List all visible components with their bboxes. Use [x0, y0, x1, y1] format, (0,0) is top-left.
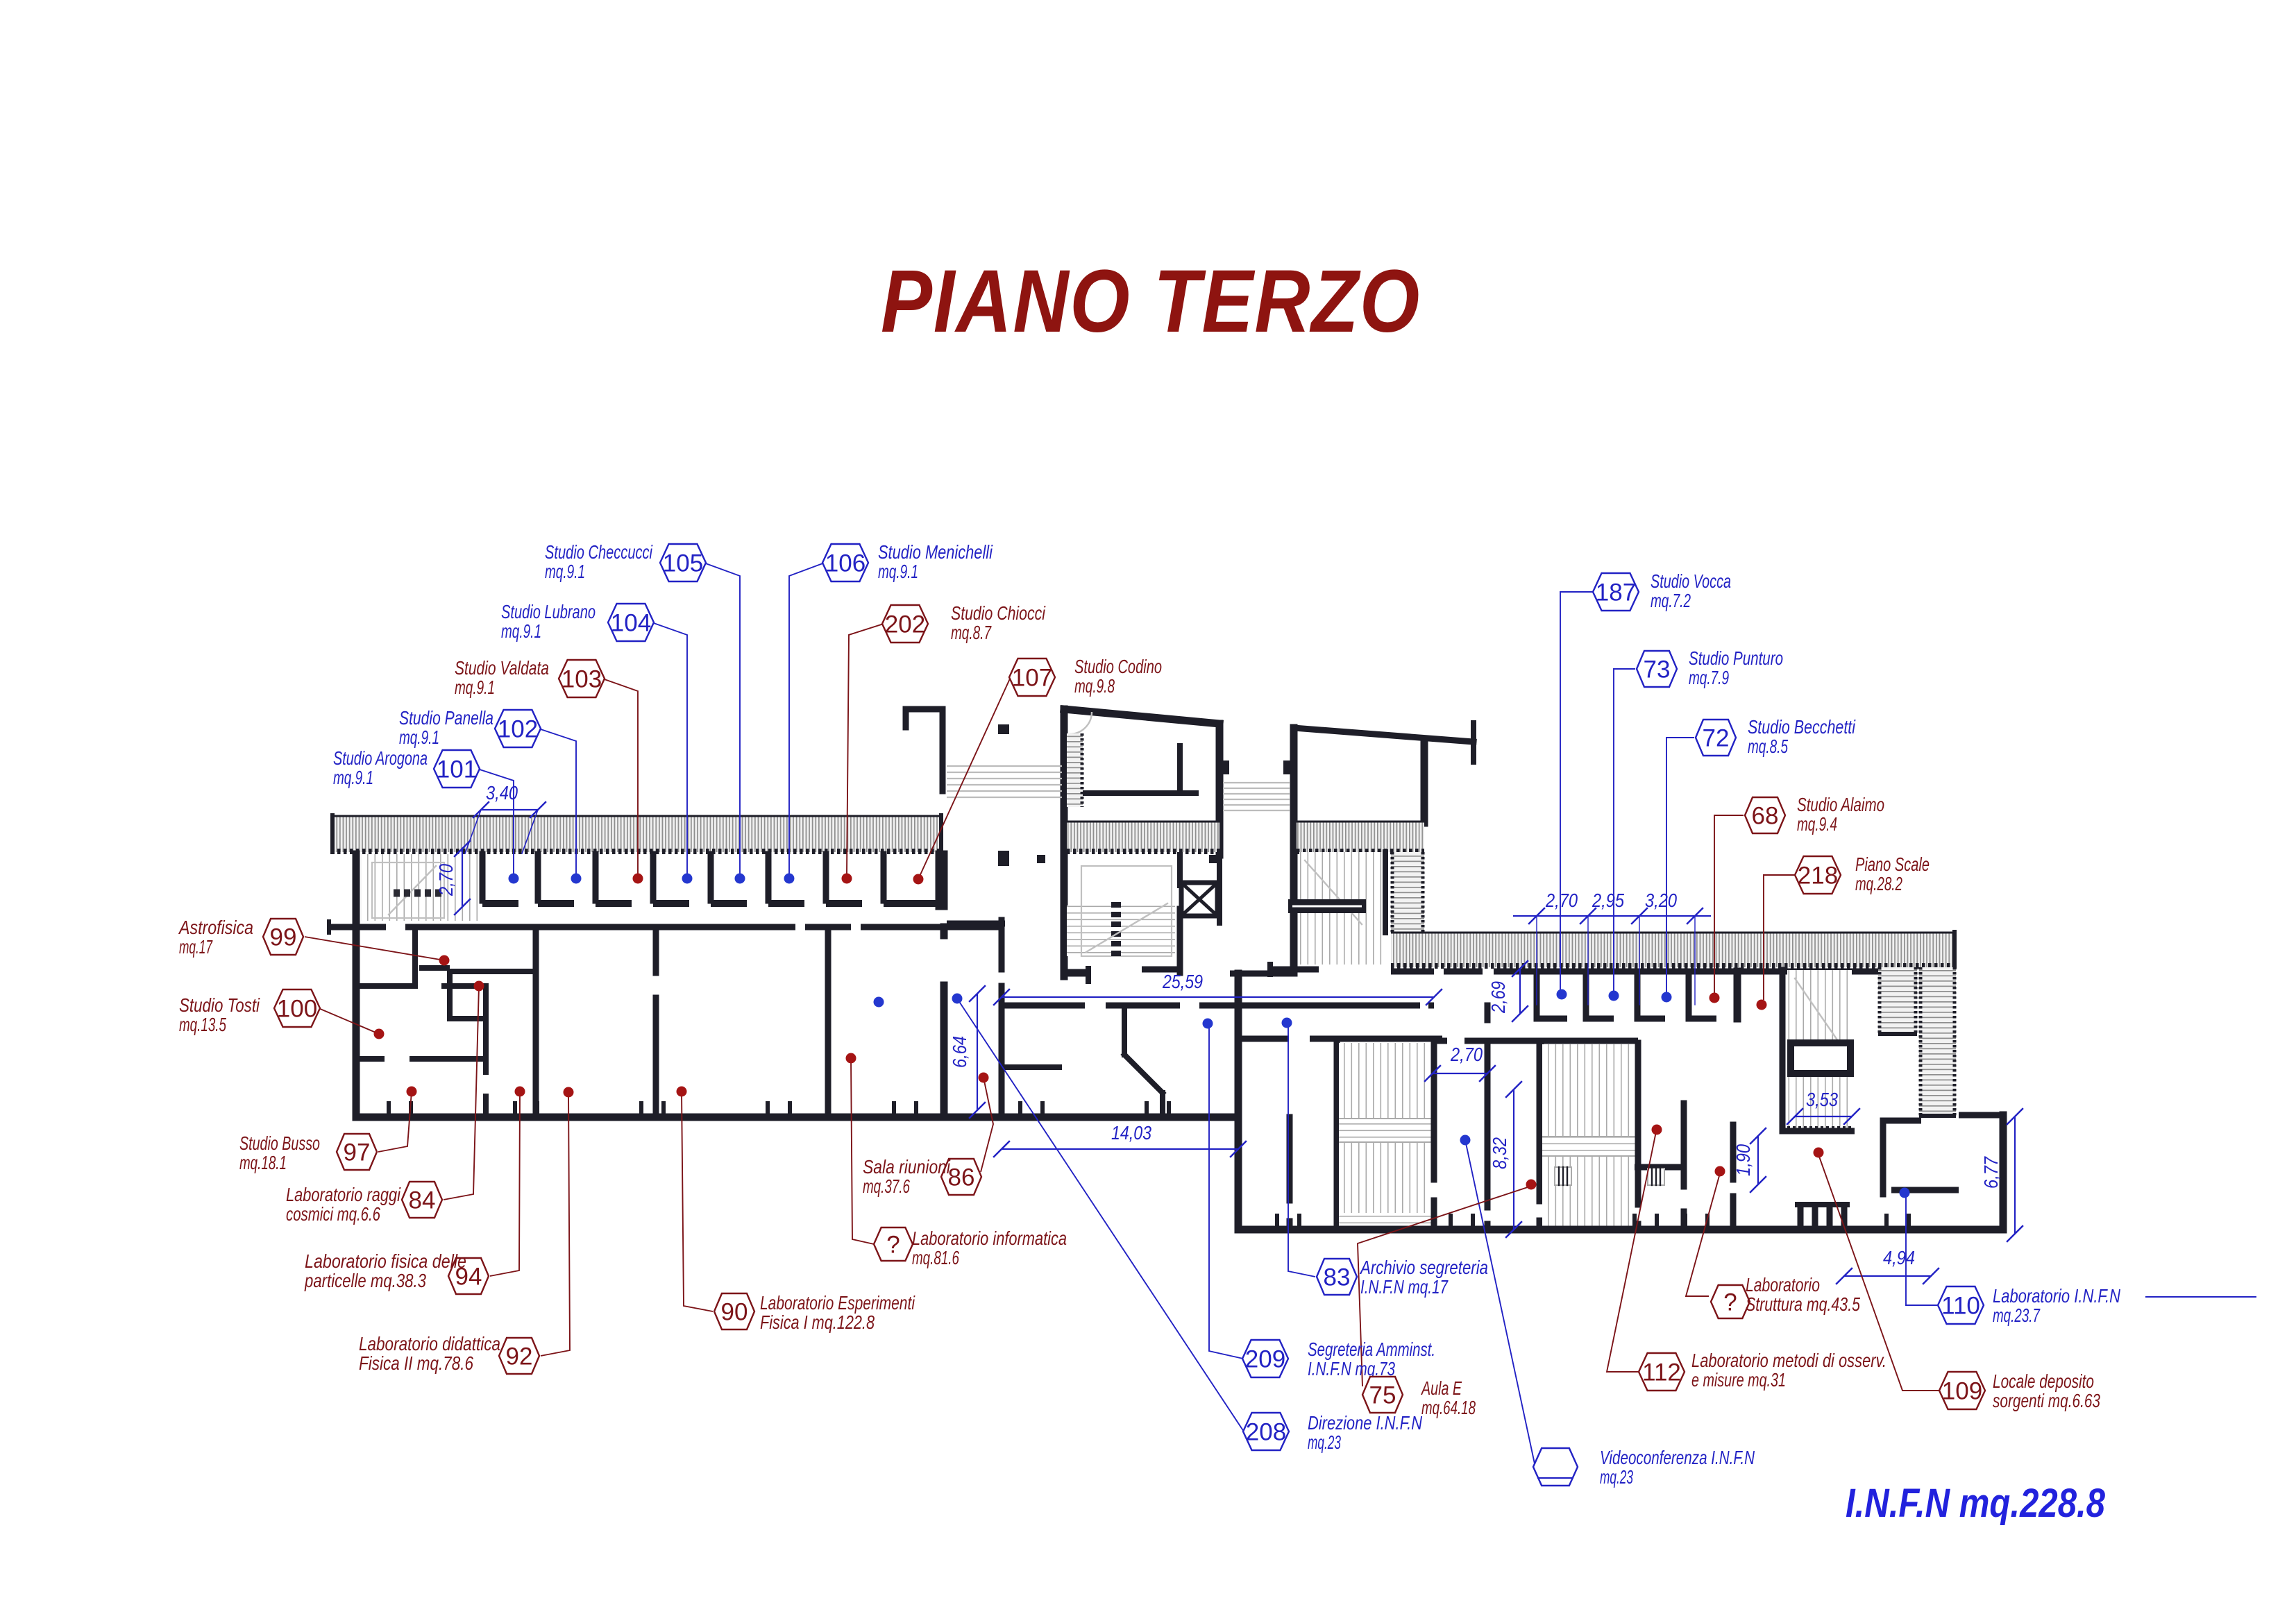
svg-text:Studio Panella: Studio Panella [399, 707, 493, 729]
svg-text:Studio Becchetti: Studio Becchetti [1748, 716, 1856, 738]
svg-text:6,64: 6,64 [949, 1036, 970, 1068]
svg-text:sorgenti mq.6.63: sorgenti mq.6.63 [1993, 1390, 2101, 1411]
svg-text:107: 107 [1012, 664, 1052, 691]
svg-text:Laboratorio I.N.F.N: Laboratorio I.N.F.N [1993, 1285, 2120, 1307]
svg-text:2,70: 2,70 [435, 864, 457, 897]
svg-text:2,70: 2,70 [1450, 1044, 1483, 1065]
svg-text:PIANO TERZO: PIANO TERZO [881, 252, 1421, 351]
svg-text:109: 109 [1942, 1377, 1982, 1404]
svg-text:8,32: 8,32 [1489, 1137, 1510, 1169]
svg-text:mq.64.18: mq.64.18 [1421, 1397, 1476, 1418]
svg-text:Sala riunioni: Sala riunioni [863, 1156, 951, 1178]
svg-text:mq.9.4: mq.9.4 [1797, 813, 1837, 835]
svg-text:104: 104 [611, 609, 651, 636]
svg-text:Astrofisica: Astrofisica [178, 917, 253, 938]
svg-text:86: 86 [948, 1164, 975, 1191]
svg-text:Laboratorio metodi di osserv.: Laboratorio metodi di osserv. [1691, 1350, 1886, 1371]
svg-text:mq.9.1: mq.9.1 [455, 677, 495, 698]
svg-text:110: 110 [1941, 1292, 1980, 1319]
svg-text:mq.9.1: mq.9.1 [501, 620, 541, 642]
svg-text:Videoconferenza I.N.F.N: Videoconferenza I.N.F.N [1600, 1447, 1755, 1468]
svg-text:Studio Valdata: Studio Valdata [455, 657, 549, 679]
svg-text:mq.81.6: mq.81.6 [912, 1247, 959, 1268]
svg-text:Studio Vocca: Studio Vocca [1651, 570, 1731, 592]
svg-text:Studio Punturo: Studio Punturo [1689, 647, 1783, 669]
svg-text:14,03: 14,03 [1111, 1122, 1151, 1144]
svg-text:Laboratorio fisica delle: Laboratorio fisica delle [305, 1250, 466, 1272]
svg-text:209: 209 [1245, 1345, 1285, 1373]
svg-text:mq.8.5: mq.8.5 [1748, 736, 1788, 757]
svg-text:101: 101 [437, 756, 477, 783]
svg-text:Laboratorio raggi: Laboratorio raggi [286, 1184, 401, 1205]
svg-text:e misure mq.31: e misure mq.31 [1691, 1369, 1786, 1391]
svg-text:Studio Busso: Studio Busso [239, 1132, 320, 1154]
svg-text:Studio Codino: Studio Codino [1074, 656, 1162, 677]
svg-text:mq.17: mq.17 [179, 936, 213, 958]
svg-text:218: 218 [1798, 862, 1838, 889]
svg-text:72: 72 [1703, 724, 1730, 751]
svg-text:84: 84 [409, 1187, 436, 1214]
svg-text:?: ? [1723, 1289, 1737, 1316]
svg-text:90: 90 [721, 1298, 748, 1325]
svg-text:Studio Lubrano: Studio Lubrano [501, 601, 596, 622]
svg-text:25,59: 25,59 [1162, 971, 1203, 992]
svg-text:Studio Checcucci: Studio Checcucci [545, 541, 653, 563]
svg-text:99: 99 [270, 924, 297, 951]
svg-text:73: 73 [1644, 656, 1671, 683]
svg-text:68: 68 [1752, 802, 1779, 829]
svg-text:mq.18.1: mq.18.1 [239, 1152, 287, 1173]
svg-text:112: 112 [1642, 1359, 1681, 1386]
svg-text:mq.9.1: mq.9.1 [399, 726, 439, 748]
svg-text:4,94: 4,94 [1883, 1247, 1915, 1268]
svg-text:Studio Menichelli: Studio Menichelli [878, 541, 993, 563]
svg-text:Studio Tosti: Studio Tosti [179, 994, 260, 1016]
svg-text:102: 102 [498, 715, 538, 742]
svg-text:mq.37.6: mq.37.6 [863, 1175, 910, 1197]
svg-text:3,20: 3,20 [1645, 890, 1677, 911]
svg-text:mq.28.2: mq.28.2 [1855, 873, 1902, 894]
svg-text:Struttura mq.43.5: Struttura mq.43.5 [1746, 1293, 1861, 1315]
svg-text:mq.23: mq.23 [1308, 1431, 1341, 1453]
svg-text:Studio Arogona: Studio Arogona [333, 747, 428, 769]
svg-text:100: 100 [277, 995, 317, 1022]
svg-text:mq.8.7: mq.8.7 [951, 622, 992, 643]
svg-text:1,90: 1,90 [1732, 1144, 1754, 1176]
svg-text:mq.7.9: mq.7.9 [1689, 667, 1729, 688]
svg-text:mq.23.7: mq.23.7 [1993, 1305, 2041, 1326]
svg-text:Fisica II mq.78.6: Fisica II mq.78.6 [359, 1352, 474, 1374]
svg-text:Laboratorio didattica: Laboratorio didattica [359, 1333, 500, 1354]
svg-text:particelle mq.38.3: particelle mq.38.3 [304, 1270, 426, 1291]
svg-text:cosmici mq.6.6: cosmici mq.6.6 [286, 1203, 381, 1225]
svg-text:Locale deposito: Locale deposito [1993, 1370, 2094, 1392]
svg-text:202: 202 [885, 611, 925, 638]
svg-text:2,70: 2,70 [1545, 890, 1578, 911]
svg-text:mq.9.1: mq.9.1 [333, 767, 373, 788]
svg-text:208: 208 [1246, 1418, 1286, 1445]
svg-text:Studio Chiocci: Studio Chiocci [951, 602, 1046, 624]
svg-text:Laboratorio: Laboratorio [1746, 1274, 1820, 1295]
svg-text:105: 105 [663, 550, 703, 577]
svg-text:103: 103 [562, 665, 602, 692]
svg-text:mq.9.1: mq.9.1 [878, 561, 918, 582]
svg-text:6,77: 6,77 [1980, 1156, 2002, 1189]
svg-text:mq.7.2: mq.7.2 [1651, 590, 1691, 611]
svg-text:mq.9.1: mq.9.1 [545, 561, 585, 582]
svg-text:mq.9.8: mq.9.8 [1074, 675, 1115, 697]
svg-text:3,53: 3,53 [1806, 1089, 1838, 1110]
svg-text:Piano Scale: Piano Scale [1855, 853, 1930, 875]
svg-text:97: 97 [344, 1139, 371, 1166]
svg-text:106: 106 [825, 550, 866, 577]
svg-text:Laboratorio informatica: Laboratorio informatica [912, 1227, 1067, 1249]
svg-text:92: 92 [506, 1343, 533, 1370]
svg-text:Studio Alaimo: Studio Alaimo [1797, 794, 1884, 815]
svg-text:I.N.F.N mq.17: I.N.F.N mq.17 [1360, 1276, 1449, 1298]
svg-text:83: 83 [1324, 1264, 1351, 1291]
svg-text:Direzione I.N.F.N: Direzione I.N.F.N [1308, 1412, 1422, 1434]
svg-text:2,95: 2,95 [1592, 890, 1624, 911]
svg-text:?: ? [886, 1231, 900, 1258]
svg-text:Aula E: Aula E [1421, 1377, 1462, 1399]
svg-text:2,69: 2,69 [1487, 981, 1509, 1014]
svg-text:Segreteria Amminst.: Segreteria Amminst. [1308, 1339, 1435, 1360]
svg-text:I.N.F.N mq.228.8: I.N.F.N mq.228.8 [1846, 1481, 2106, 1526]
svg-text:Laboratorio Esperimenti: Laboratorio Esperimenti [760, 1292, 915, 1314]
svg-text:Fisica I mq.122.8: Fisica I mq.122.8 [760, 1311, 875, 1333]
svg-text:75: 75 [1369, 1382, 1396, 1409]
svg-text:mq.13.5: mq.13.5 [179, 1014, 226, 1035]
svg-text:mq.23: mq.23 [1600, 1466, 1633, 1488]
svg-text:Archivio segreteria: Archivio segreteria [1359, 1257, 1488, 1278]
svg-text:187: 187 [1596, 579, 1636, 606]
